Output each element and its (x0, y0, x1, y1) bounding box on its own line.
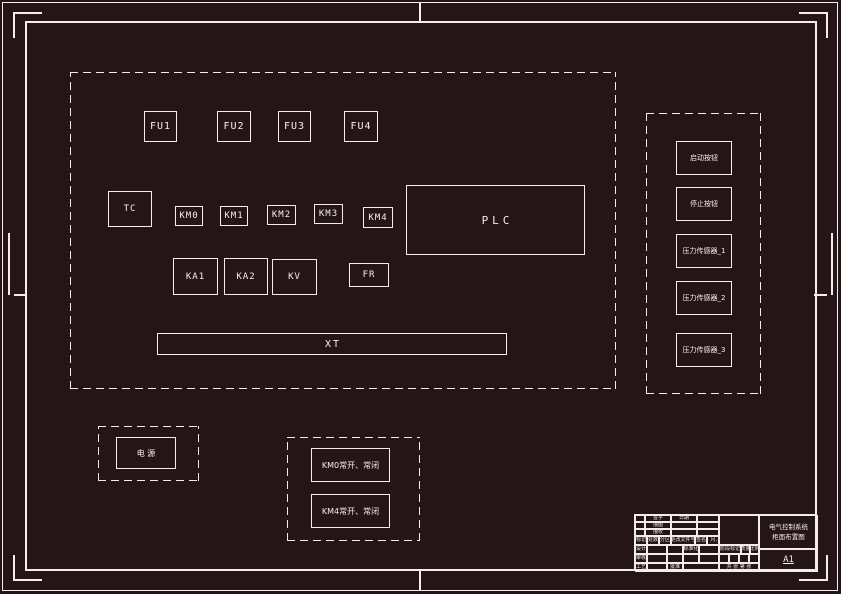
component-fuse-fu3: FU3 (278, 111, 311, 142)
title-block-cell: 质量 (741, 545, 750, 554)
title-block-cell (739, 554, 749, 563)
centering-mark-top (419, 3, 421, 22)
title-block-cell (683, 563, 719, 572)
title-block-cell: 标准化 (683, 545, 699, 554)
title-block-cell: 描校 (645, 529, 671, 536)
title-block-cell (671, 522, 697, 529)
title-block-cell: 批准 (667, 563, 683, 572)
door-start-button-box: 启动按钮 (676, 141, 732, 175)
corner-mark (826, 555, 828, 581)
title-block-material-cell (719, 515, 759, 545)
title-block-cell: 处数 (647, 536, 659, 545)
title-block-cell (683, 554, 699, 563)
corner-mark (13, 12, 42, 14)
component-fuse-fu4: FU4 (344, 111, 378, 142)
component-thermal-relay-fr: FR (349, 263, 389, 287)
title-block-cell: 更改文件号 (671, 536, 695, 545)
centering-mark-right (831, 233, 833, 295)
title-block-sheets-cell: 共 张 第 张 (719, 563, 759, 572)
title-block-cell: 签字 (645, 515, 671, 522)
cad-drawing-canvas: FU1 FU2 FU3 FU4 TC KM0 KM1 KM2 KM3 KM4 P… (0, 0, 841, 594)
component-fuse-fu2: FU2 (217, 111, 251, 142)
title-block-cell: 设计 (635, 545, 647, 554)
centering-mark-left (8, 233, 10, 295)
centering-mark-bottom (419, 571, 421, 591)
component-transformer-tc: TC (108, 191, 152, 227)
title-block-cell (699, 554, 719, 563)
title-block-cell: 签名 (695, 536, 707, 545)
title-block-cell: 分区 (659, 536, 671, 545)
door-pressure-sensor-1-box: 压力传感器_1 (676, 234, 732, 268)
component-contactor-km0: KM0 (175, 206, 203, 226)
component-terminal-block-xt: XT (157, 333, 507, 355)
title-block-cell (667, 545, 683, 554)
door-pressure-sensor-2-box: 压力传感器_2 (676, 281, 732, 315)
title-block-cell (749, 554, 759, 563)
corner-mark (13, 555, 15, 581)
component-plc: PLC (406, 185, 585, 255)
sheet-size-cell: A1 (759, 549, 818, 572)
title-block-cell (697, 529, 719, 536)
title-block-cell (635, 522, 645, 529)
title-block-cell: 年、月、日 (707, 536, 719, 545)
title-block-cell: 比例 (750, 545, 759, 554)
title-block-cell (729, 554, 739, 563)
title-block-cell: 审核 (635, 554, 647, 563)
aux-km4-contacts-box: KM4常开、常闭 (311, 494, 390, 528)
corner-mark (799, 12, 828, 14)
corner-mark (13, 12, 15, 38)
centering-mark-left (14, 294, 27, 296)
title-block-cell: 阶段标记 (719, 545, 741, 554)
component-contactor-km4: KM4 (363, 207, 393, 228)
door-stop-button-box: 停止按钮 (676, 187, 732, 221)
title-block-cell (635, 529, 645, 536)
component-fuse-fu1: FU1 (144, 111, 177, 142)
title-block-cell: 工艺 (635, 563, 647, 572)
component-contactor-km3: KM3 (314, 204, 343, 224)
title-block-cell (671, 529, 697, 536)
title-block-cell: 标记 (635, 536, 647, 545)
component-contactor-km1: KM1 (220, 206, 248, 226)
title-block-cell: 描图 (645, 522, 671, 529)
drawing-title-line1: 电气控制系统 (769, 524, 808, 531)
component-contactor-km2: KM2 (267, 205, 296, 225)
title-block-cell (647, 563, 667, 572)
component-relay-kv: KV (272, 259, 317, 295)
corner-mark (13, 579, 42, 581)
title-block-cell (697, 515, 719, 522)
title-block: 签字 日期 描图 描校 标记 处数 分区 更改文件号 签名 年、月、日 设计 标… (634, 514, 817, 571)
title-block-cell (635, 515, 645, 522)
corner-mark (826, 12, 828, 38)
title-block-cell: 日期 (671, 515, 697, 522)
drawing-title-line2: 柜面布置图 (772, 534, 805, 541)
corner-mark (799, 579, 828, 581)
aux-km0-contacts-box: KM0常开、常闭 (311, 448, 390, 482)
title-block-cell (647, 545, 667, 554)
component-relay-ka2: KA2 (224, 258, 268, 295)
power-supply-box: 电 源 (116, 437, 176, 469)
title-block-cell (719, 554, 729, 563)
door-pressure-sensor-3-box: 压力传感器_3 (676, 333, 732, 367)
component-relay-ka1: KA1 (173, 258, 218, 295)
drawing-title-cell: 电气控制系统 柜面布置图 (759, 515, 818, 549)
title-block-cell (667, 554, 683, 563)
title-block-cell (647, 554, 667, 563)
centering-mark-right (814, 294, 827, 296)
title-block-cell (697, 522, 719, 529)
title-block-cell (699, 545, 719, 554)
